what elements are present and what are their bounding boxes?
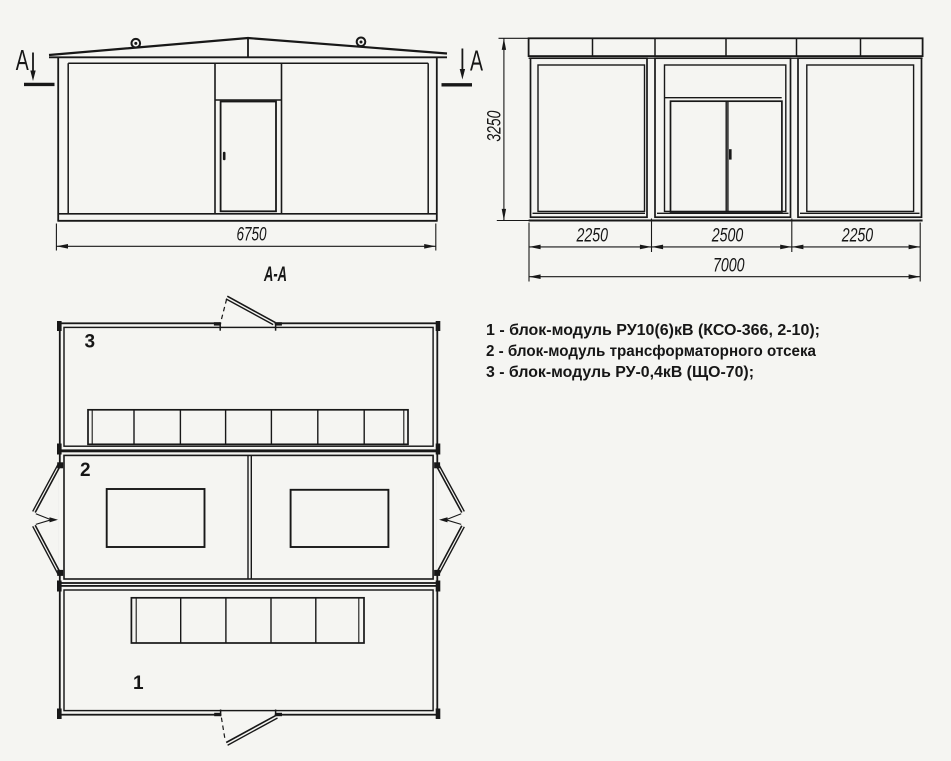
svg-text:2500: 2500 — [711, 226, 744, 247]
svg-text:3: 3 — [85, 332, 96, 353]
svg-text:3250: 3250 — [485, 110, 506, 141]
svg-text:2250: 2250 — [576, 226, 609, 247]
svg-text:1 - блок-модуль РУ10(6)кВ (КС: 1 - блок-модуль РУ10(6)кВ (КСО-366, 2-10… — [486, 322, 820, 339]
svg-text:2250: 2250 — [841, 226, 874, 247]
svg-text:2: 2 — [80, 460, 91, 481]
svg-text:2 - блок-модуль трансформаторн: 2 - блок-модуль трансформаторного отсека — [486, 343, 816, 360]
svg-text:А: А — [16, 45, 29, 77]
svg-text:6750: 6750 — [237, 225, 267, 246]
svg-text:3 - блок-модуль РУ-0,4кВ (ЩО-7: 3 - блок-модуль РУ-0,4кВ (ЩО-70); — [486, 364, 754, 381]
svg-text:7000: 7000 — [713, 256, 745, 277]
svg-text:А-А: А-А — [263, 263, 287, 286]
svg-text:1: 1 — [133, 673, 144, 694]
svg-text:А: А — [470, 46, 483, 78]
